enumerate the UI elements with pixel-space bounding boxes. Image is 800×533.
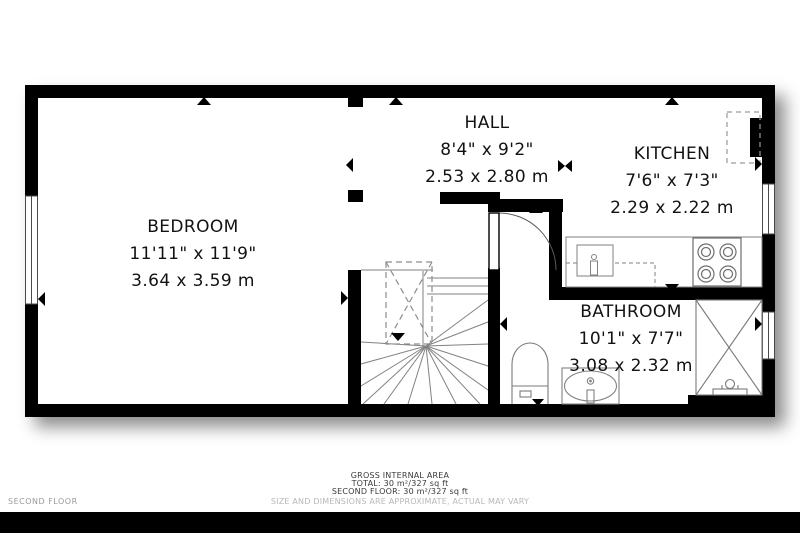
room-name: BEDROOM <box>58 214 328 241</box>
stairs-direction-arrow <box>391 333 405 341</box>
kitchen-sink <box>577 245 613 276</box>
room-label-kitchen: KITCHEN 7'6" x 7'3" 2.29 x 2.22 m <box>552 141 792 222</box>
room-name: KITCHEN <box>552 141 792 168</box>
marker-bedroom-top-icon <box>197 97 211 105</box>
area-summary-disclaimer: SIZE AND DIMENSIONS ARE APPROXIMATE, ACT… <box>0 498 800 506</box>
floor-label: SECOND FLOOR <box>8 497 78 506</box>
floorplan-canvas: BEDROOM 11'11" x 11'9" 3.64 x 3.59 m HAL… <box>0 0 800 533</box>
window-bedroom-left <box>26 196 38 304</box>
footer-bar <box>0 512 800 533</box>
room-label-bathroom: BATHROOM 10'1" x 7'7" 3.08 x 2.32 m <box>501 299 761 380</box>
room-label-bedroom: BEDROOM 11'11" x 11'9" 3.64 x 3.59 m <box>58 214 328 295</box>
window-bathroom-right <box>763 312 775 359</box>
room-name: BATHROOM <box>501 299 761 326</box>
door <box>489 213 556 270</box>
area-summary: GROSS INTERNAL AREA TOTAL: 30 m²/327 sq … <box>0 472 800 506</box>
marker-bedroom-west-icon <box>38 292 45 306</box>
room-name: HALL <box>352 110 622 137</box>
void-hatch <box>386 262 432 344</box>
area-summary-floor-total: SECOND FLOOR: 30 m²/327 sq ft <box>0 488 800 496</box>
marker-hall-top-icon <box>389 97 403 105</box>
room-dims-imperial: 10'1" x 7'7" <box>501 326 761 353</box>
marker-kitchen-top-icon <box>665 97 679 105</box>
stove-4-burner <box>693 238 741 286</box>
room-dims-metric: 3.64 x 3.59 m <box>58 268 328 295</box>
room-dims-imperial: 7'6" x 7'3" <box>552 168 792 195</box>
room-dims-metric: 2.29 x 2.22 m <box>552 195 792 222</box>
room-dims-imperial: 11'11" x 11'9" <box>58 241 328 268</box>
staircase <box>361 270 488 404</box>
marker-bedroom-east-icon <box>341 291 348 305</box>
room-dims-metric: 3.08 x 2.32 m <box>501 353 761 380</box>
